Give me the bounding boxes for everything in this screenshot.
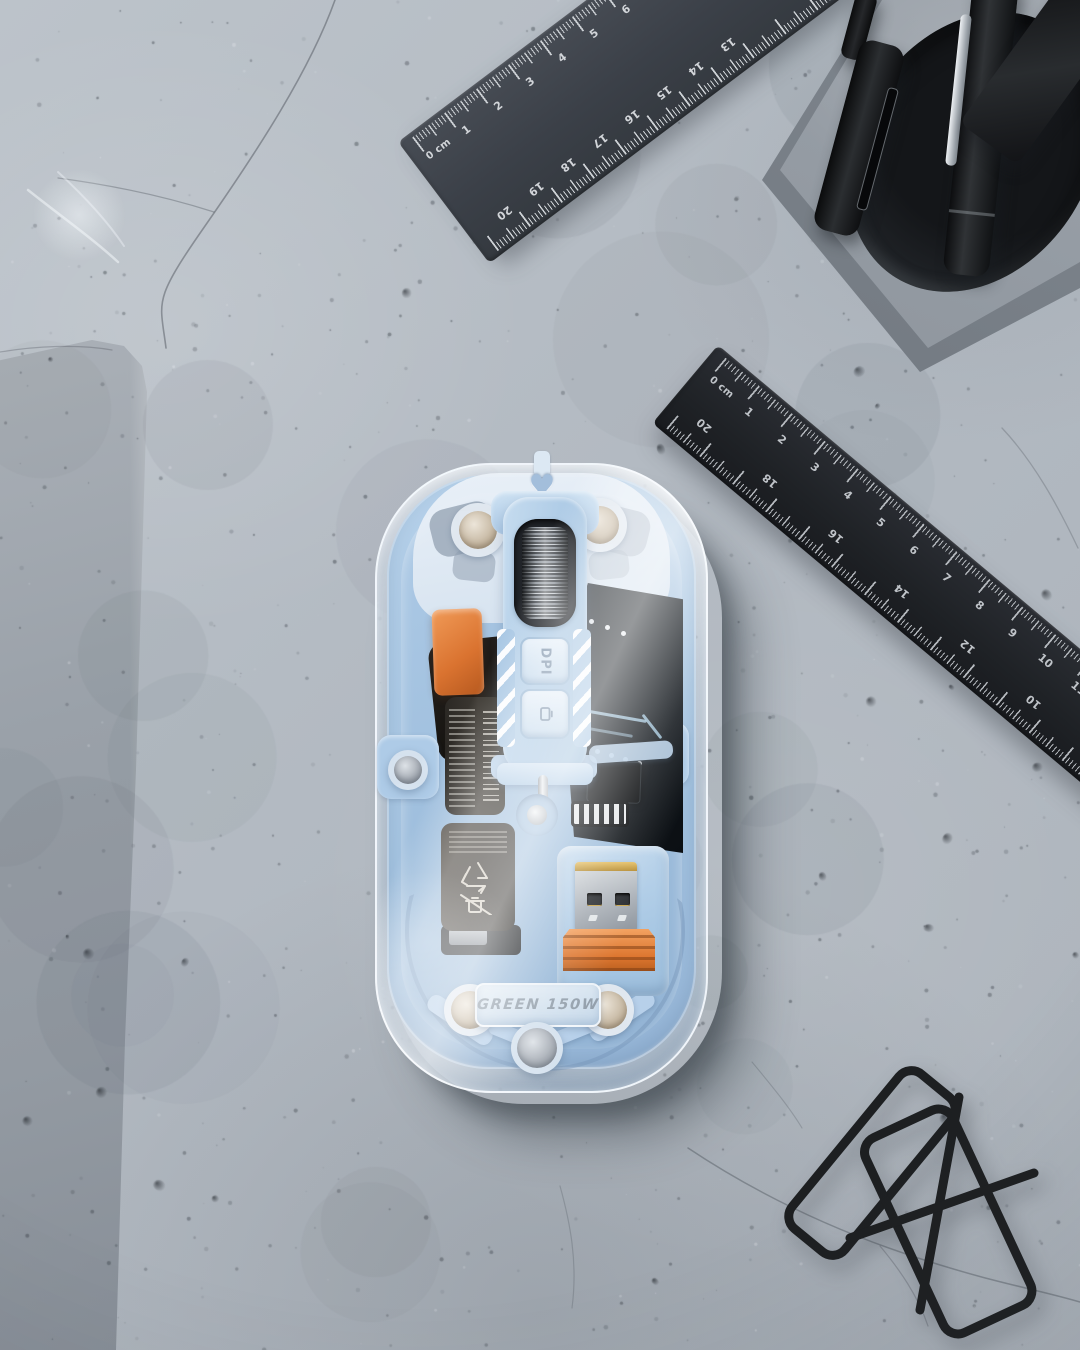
ruler-number: 3 [523, 74, 537, 89]
ruler-number: 7 [939, 570, 953, 585]
wire-cable-stand [742, 1058, 1080, 1350]
ruler-number: 3 [808, 460, 822, 475]
glass-reflection [375, 463, 708, 1093]
ruler-number: 2 [775, 432, 789, 447]
ruler-number: 5 [587, 26, 601, 41]
ruler-number: 2 [491, 98, 505, 113]
transparent-wireless-mouse: ♥ [375, 463, 708, 1093]
ruler-number: 11 [1068, 678, 1080, 698]
ruler-number: 4 [555, 50, 569, 65]
ruler-number: 6 [619, 2, 633, 17]
ruler-number: 4 [841, 488, 855, 503]
ruler-number: 5 [874, 515, 888, 530]
ruler-number: 6 [907, 543, 921, 558]
ruler-number: 9 [1005, 626, 1019, 641]
ruler-number: 1 [742, 405, 756, 420]
ruler-number: 1 [459, 122, 473, 137]
product-photo-scene: 0 cm123456782019181716151413 0 cm1234567… [0, 0, 1080, 1350]
ruler-number: 8 [972, 598, 986, 613]
